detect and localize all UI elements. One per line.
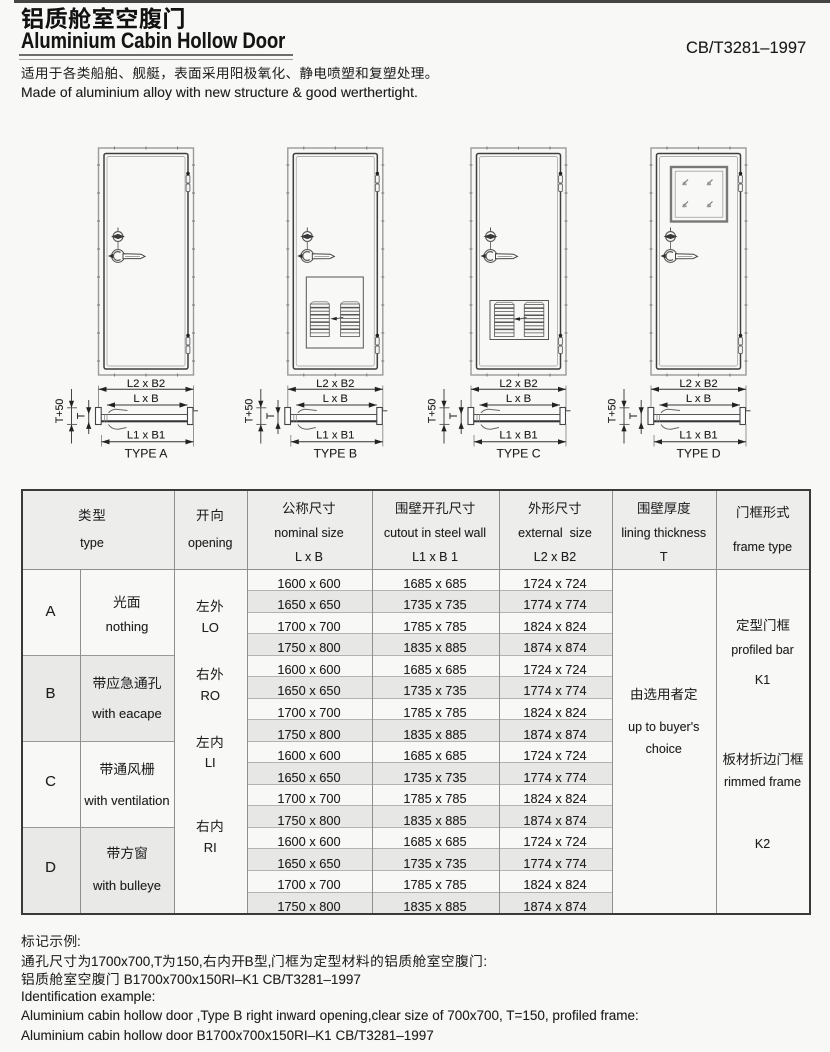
svg-text:L2 x B2: L2 x B2	[679, 378, 717, 390]
svg-text:L1 x B1: L1 x B1	[316, 430, 354, 442]
svg-text:L x B: L x B	[133, 393, 158, 405]
svg-text:TYPE D: TYPE D	[676, 446, 720, 460]
svg-text:L2 x B2: L2 x B2	[316, 378, 354, 390]
svg-text:T+50: T+50	[607, 399, 619, 424]
svg-text:TYPE C: TYPE C	[496, 446, 540, 460]
svg-text:L1 x B1: L1 x B1	[127, 430, 165, 442]
svg-text:T: T	[76, 412, 88, 419]
svg-text:L2 x B2: L2 x B2	[127, 378, 165, 390]
svg-text:T+50: T+50	[427, 399, 439, 424]
svg-text:L x B: L x B	[506, 393, 531, 405]
svg-text:T: T	[628, 412, 640, 419]
svg-text:L1 x B1: L1 x B1	[679, 430, 717, 442]
svg-text:L x B: L x B	[323, 393, 348, 405]
svg-text:L x B: L x B	[686, 393, 711, 405]
svg-text:T+50: T+50	[54, 399, 66, 424]
svg-text:T: T	[265, 412, 277, 419]
svg-text:L2 x B2: L2 x B2	[499, 378, 537, 390]
svg-text:T+50: T+50	[244, 399, 256, 424]
svg-text:TYPE B: TYPE B	[314, 446, 357, 460]
svg-text:T: T	[448, 412, 460, 419]
svg-text:TYPE A: TYPE A	[125, 446, 169, 460]
svg-text:L1 x B1: L1 x B1	[499, 430, 537, 442]
